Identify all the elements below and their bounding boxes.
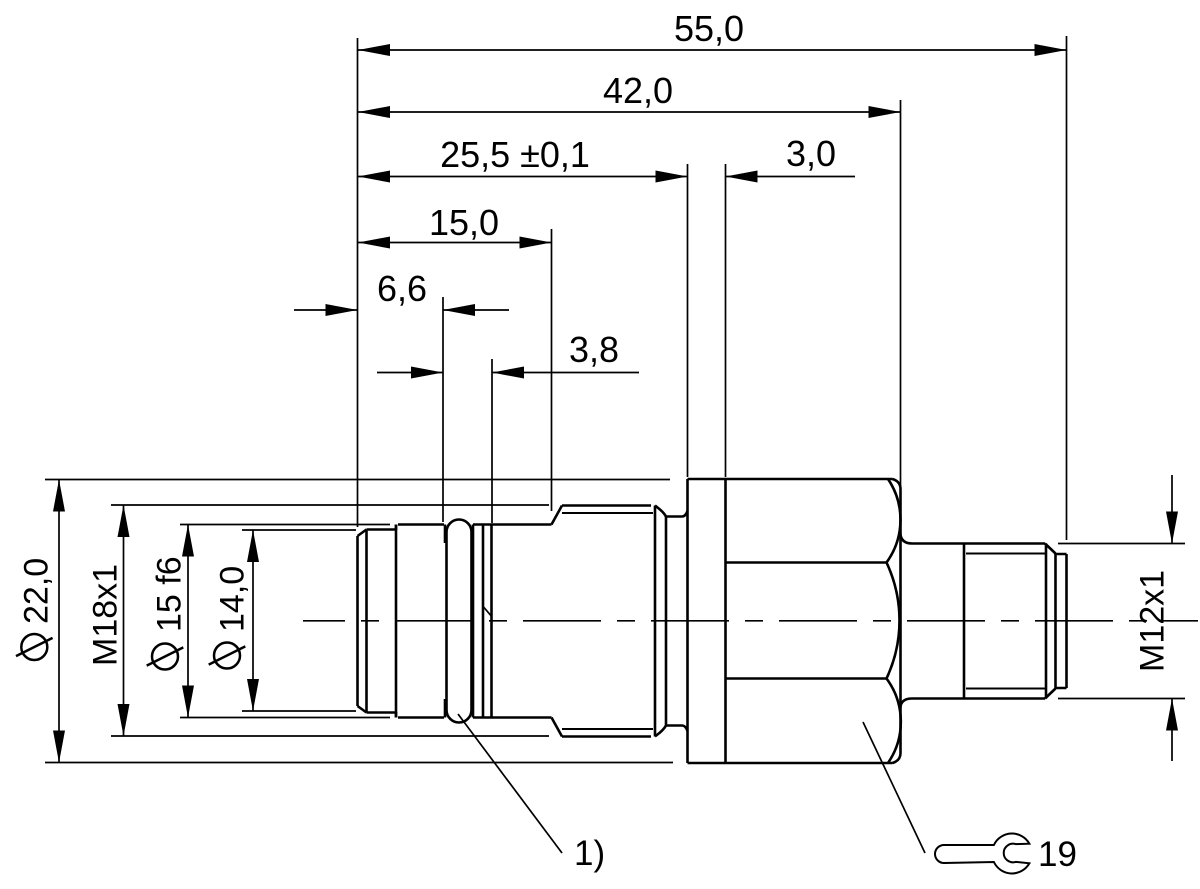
svg-text:3,0: 3,0: [786, 133, 836, 174]
svg-text:42,0: 42,0: [603, 70, 673, 111]
svg-text:1): 1): [574, 834, 605, 873]
svg-text:22,0: 22,0: [18, 558, 56, 624]
svg-text:6,6: 6,6: [377, 268, 427, 309]
svg-text:15 f6: 15 f6: [151, 556, 189, 632]
svg-text:M12x1: M12x1: [1134, 570, 1172, 672]
svg-text:55,0: 55,0: [674, 8, 744, 49]
svg-text:15,0: 15,0: [429, 202, 499, 243]
svg-text:19: 19: [1038, 835, 1077, 874]
svg-text:14,0: 14,0: [214, 566, 252, 632]
svg-text:25,5 ±0,1: 25,5 ±0,1: [440, 134, 590, 175]
svg-text:3,8: 3,8: [569, 329, 619, 370]
svg-text:M18x1: M18x1: [87, 564, 125, 666]
